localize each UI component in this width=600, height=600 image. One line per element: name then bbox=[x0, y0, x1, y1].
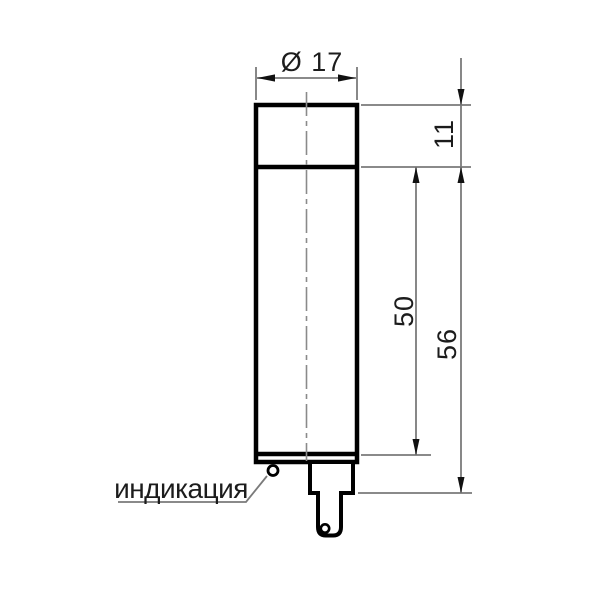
body-length-dimension-text: 50 bbox=[389, 295, 419, 327]
connector-block bbox=[310, 462, 353, 493]
diameter-arrow-left bbox=[257, 74, 275, 81]
body-length-arrow-bottom bbox=[413, 439, 420, 455]
head-height-arrow-bottom bbox=[458, 167, 465, 183]
body-length-arrow-top bbox=[413, 167, 420, 183]
indication-callout: индикация bbox=[114, 473, 267, 504]
indication-label: индикация bbox=[114, 473, 248, 504]
head-height-and-overall-dimension: 11 56 bbox=[429, 58, 465, 493]
overall-arrow-bottom bbox=[458, 477, 465, 493]
led-indicator-circle bbox=[268, 466, 278, 476]
overall-dimension-text: 56 bbox=[432, 328, 462, 360]
head-height-dimension-text: 11 bbox=[429, 119, 459, 149]
body-length-dimension: 50 bbox=[389, 167, 420, 455]
head-height-arrow-top bbox=[458, 89, 465, 105]
drawing-canvas: Ø 17 11 56 50 индикация bbox=[0, 0, 600, 600]
connector-keyway-circle bbox=[321, 524, 329, 532]
diameter-dimension-text: Ø 17 bbox=[281, 47, 344, 77]
sensor-dimension-drawing: Ø 17 11 56 50 индикация bbox=[0, 0, 600, 600]
